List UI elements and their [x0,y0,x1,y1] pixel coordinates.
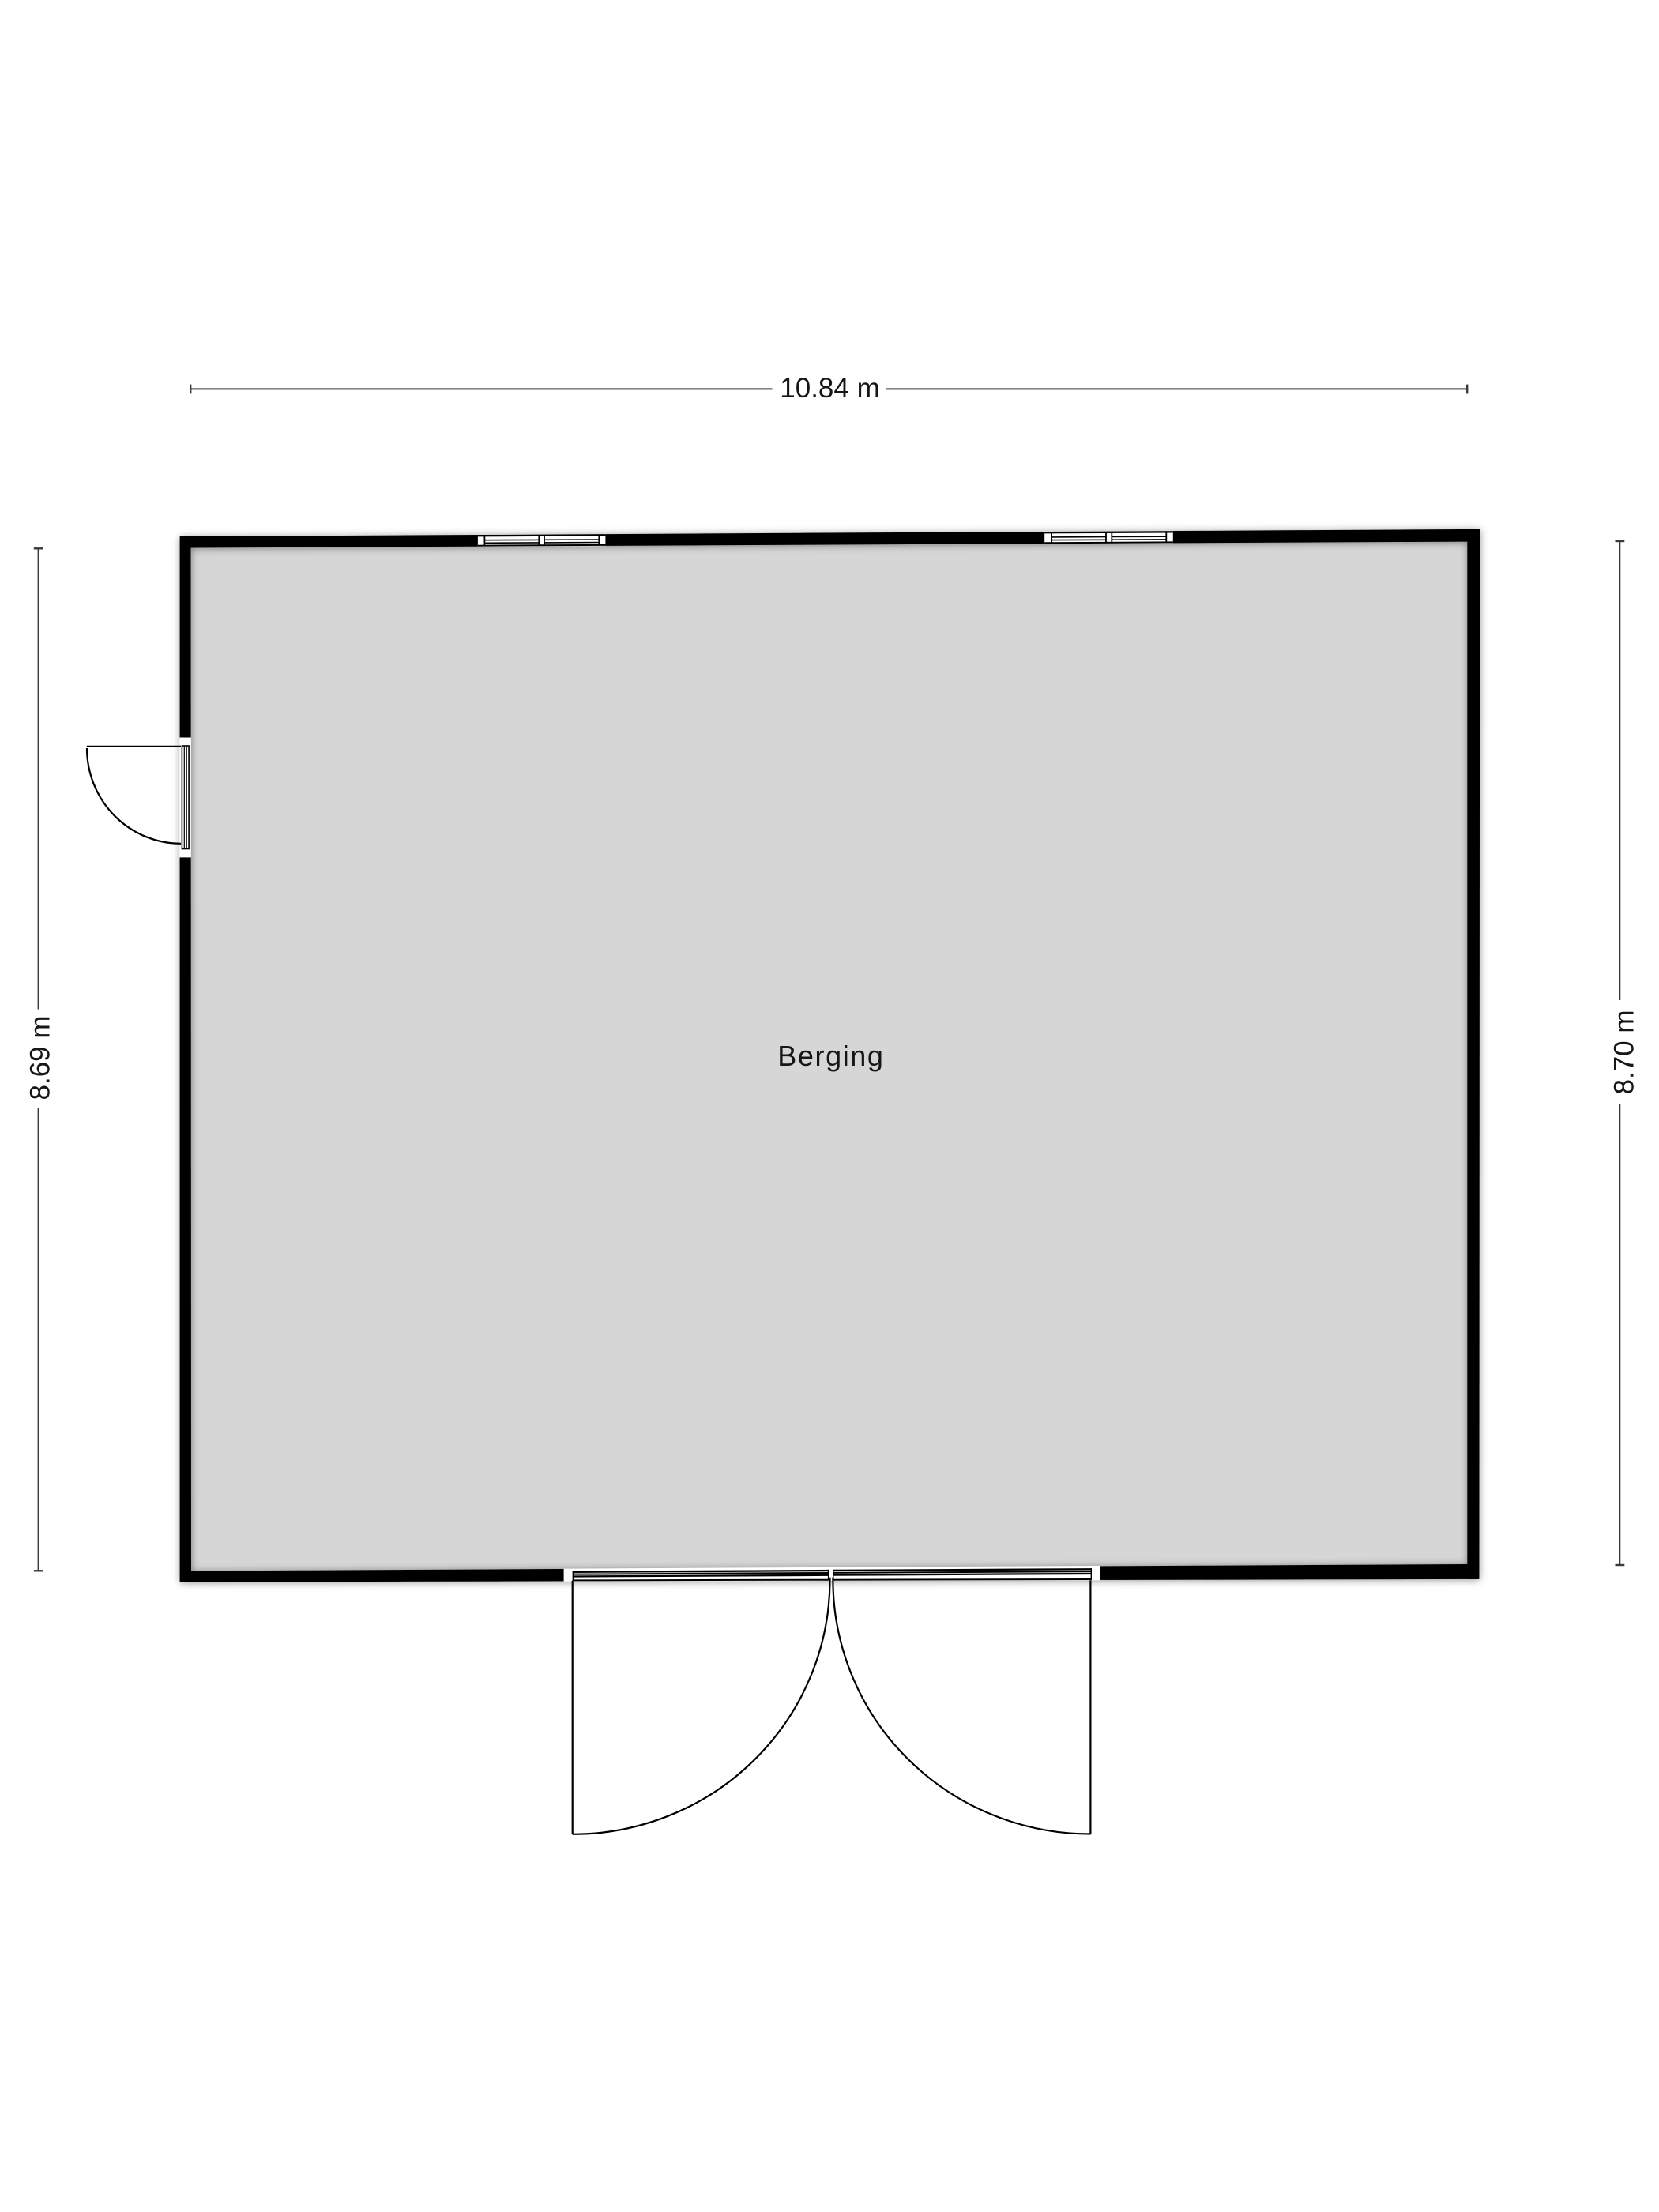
svg-text:8.70 m: 8.70 m [1609,1010,1640,1095]
svg-text:10.84 m: 10.84 m [780,373,879,404]
svg-text:Berging: Berging [777,1040,884,1072]
svg-text:8.69 m: 8.69 m [25,1016,56,1100]
